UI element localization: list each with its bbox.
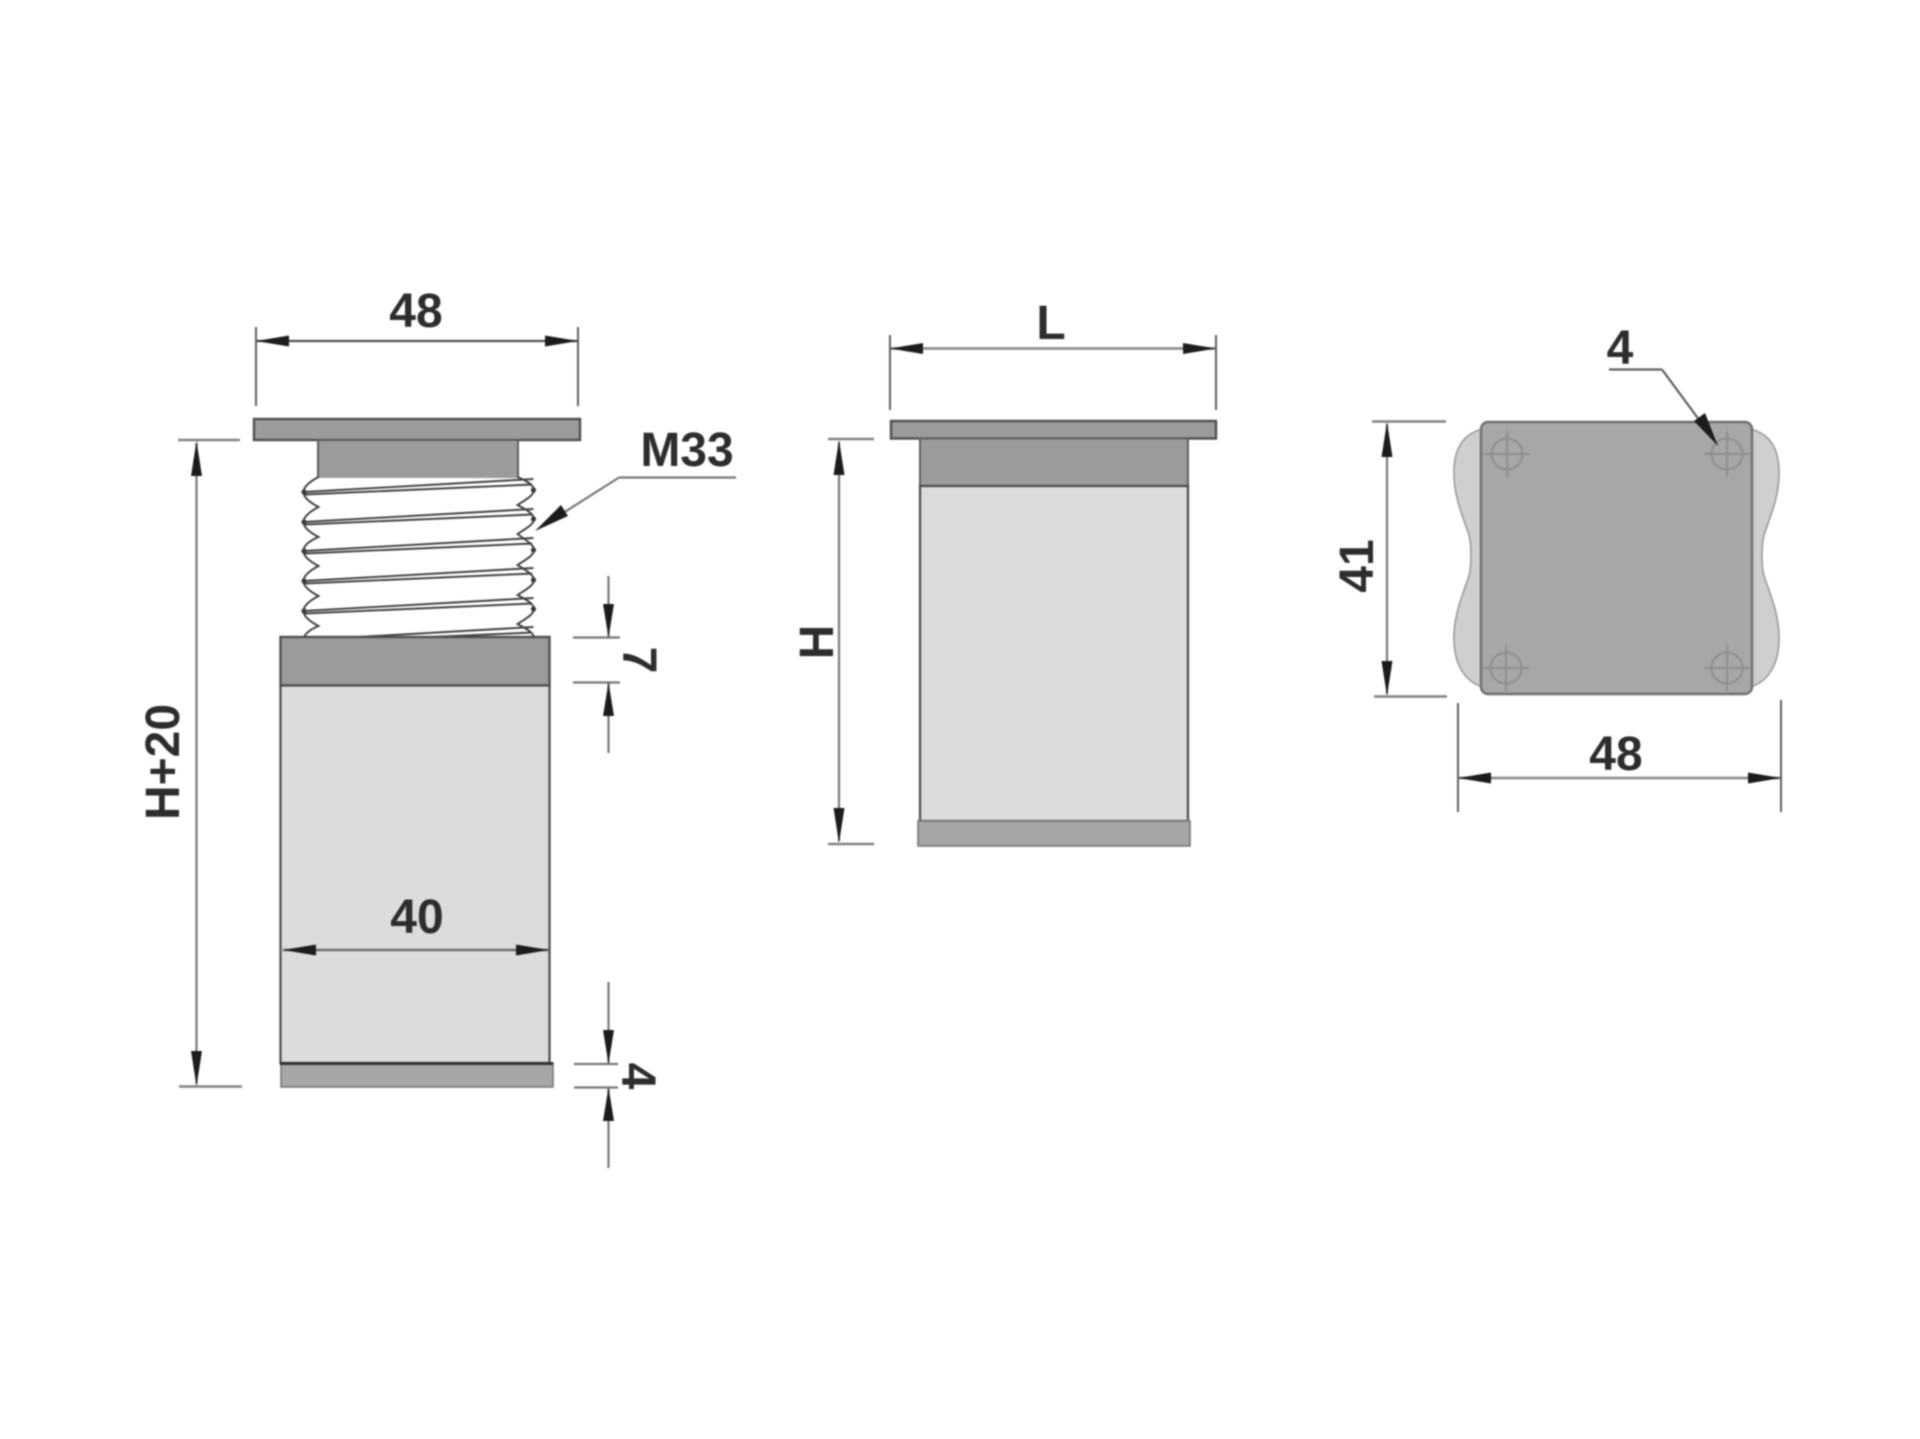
svg-text:4: 4 bbox=[611, 1063, 664, 1090]
svg-text:H: H bbox=[791, 625, 844, 660]
svg-text:7: 7 bbox=[612, 647, 665, 674]
svg-text:M33: M33 bbox=[640, 424, 733, 477]
svg-text:4: 4 bbox=[1607, 322, 1634, 375]
svg-text:40: 40 bbox=[390, 891, 443, 944]
svg-text:48: 48 bbox=[1589, 728, 1642, 781]
svg-text:H+20: H+20 bbox=[137, 704, 190, 820]
svg-text:L: L bbox=[1036, 297, 1065, 350]
svg-text:41: 41 bbox=[1331, 539, 1384, 592]
svg-text:48: 48 bbox=[389, 285, 442, 338]
